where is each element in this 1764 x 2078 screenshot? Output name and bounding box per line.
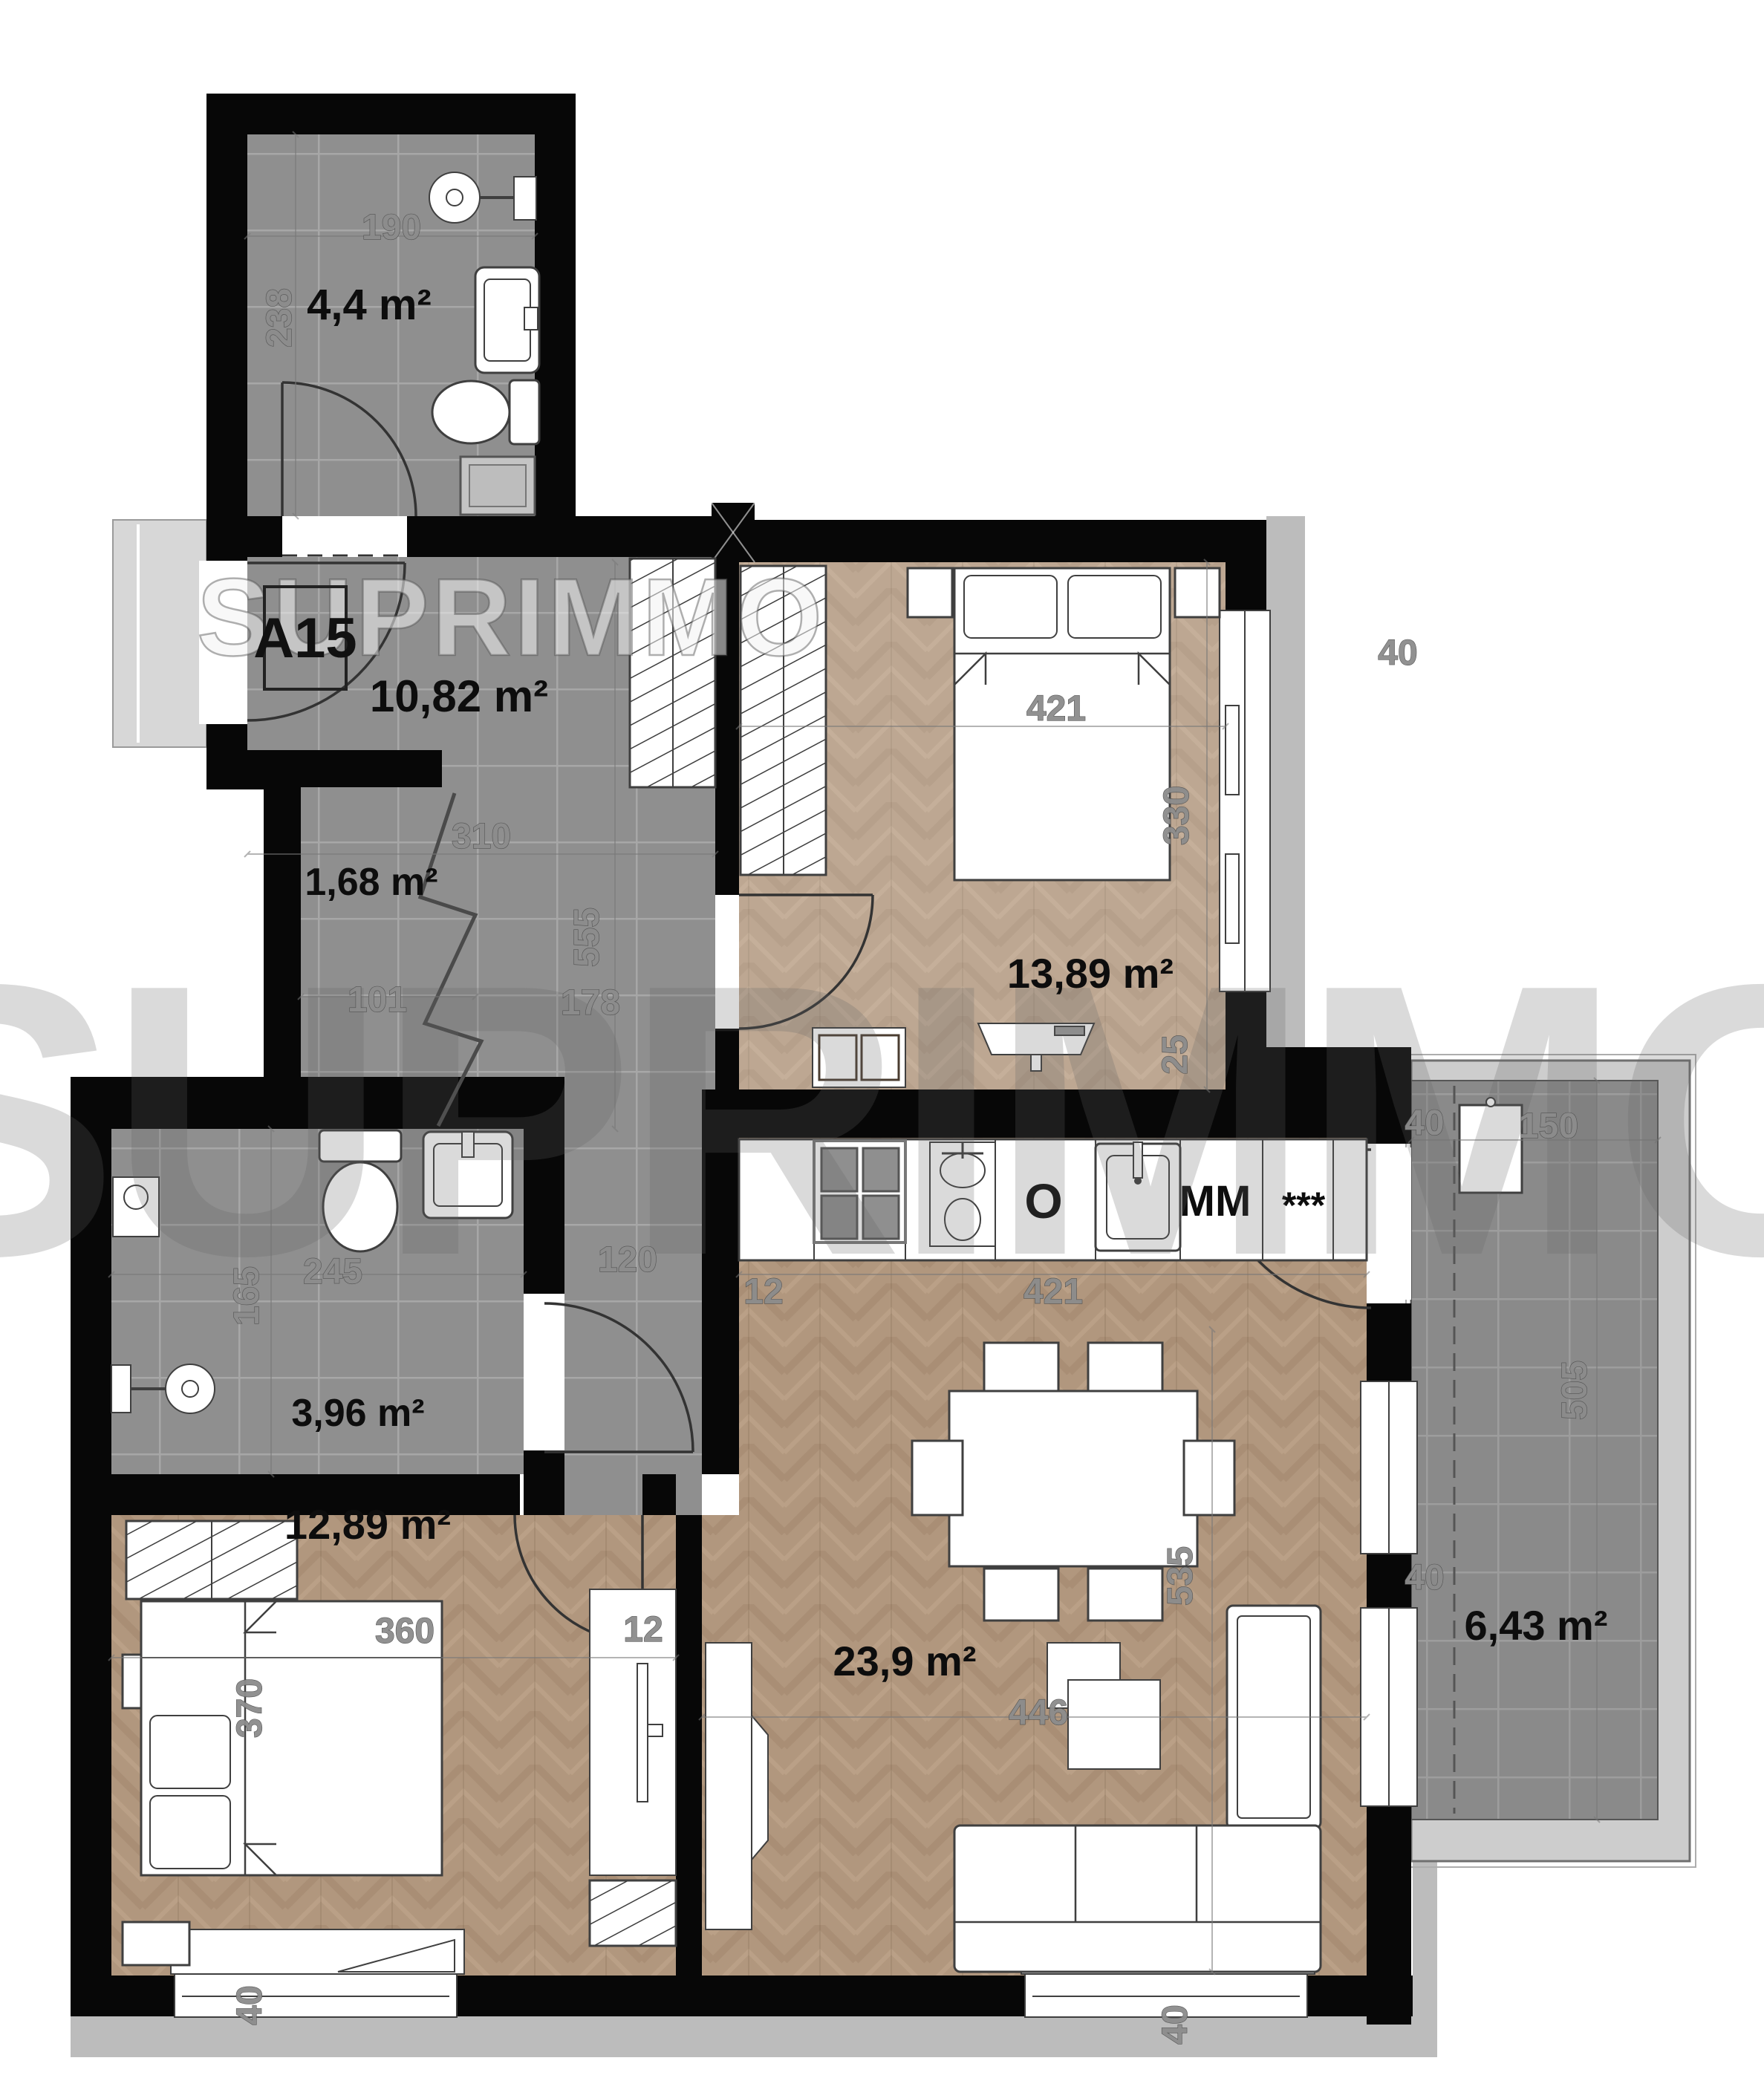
shaft-symbol bbox=[712, 503, 755, 562]
area-bath-top: 4,4 m² bbox=[307, 281, 432, 329]
dim-bath-lower-width: 245 bbox=[303, 1252, 362, 1292]
floorplan-svg: O MM *** bbox=[0, 0, 1764, 2078]
wall bbox=[71, 1976, 175, 2016]
wall bbox=[1226, 520, 1266, 610]
chair bbox=[984, 1343, 1058, 1395]
nightstand bbox=[908, 568, 952, 617]
dining-table bbox=[949, 1391, 1197, 1566]
area-hallway: 10,82 m² bbox=[370, 671, 548, 721]
area-balcony: 6,43 m² bbox=[1465, 1602, 1608, 1649]
nightstand bbox=[1175, 568, 1220, 617]
toilet-icon bbox=[432, 380, 539, 444]
wall bbox=[206, 516, 282, 557]
window-living-right-2 bbox=[1361, 1608, 1417, 1806]
dim-kitchen-offset: 12 bbox=[743, 1272, 783, 1312]
dim-closet-width: 101 bbox=[348, 980, 407, 1020]
dim-corridor-width: 120 bbox=[598, 1240, 657, 1280]
area-bath-lower: 3,96 m² bbox=[291, 1392, 424, 1435]
shower-tray-icon bbox=[460, 457, 535, 515]
dim-balcony-width: 150 bbox=[1519, 1107, 1578, 1146]
nightstand bbox=[123, 1922, 189, 1965]
wardrobe-bedroom-bottom bbox=[126, 1521, 297, 1599]
wall bbox=[535, 94, 576, 516]
dim-bedroom-bottom-window: 40 bbox=[230, 1985, 270, 2025]
dim-living-height: 535 bbox=[1161, 1546, 1200, 1606]
wall bbox=[1307, 1976, 1413, 2016]
chair bbox=[912, 1441, 963, 1515]
dim-bedroom-top-height: 330 bbox=[1157, 786, 1197, 845]
dim-bedroom-bottom-height: 370 bbox=[230, 1678, 270, 1738]
dim-bedroom-bottom-desk: 12 bbox=[623, 1610, 663, 1649]
dim-living-pier-bottom: 40 bbox=[1405, 1558, 1444, 1597]
shelf-bedroom-bottom bbox=[590, 1880, 676, 1946]
dim-balcony-height: 505 bbox=[1555, 1361, 1595, 1420]
dim-bedroom-top-bed: 421 bbox=[1026, 689, 1086, 729]
wall bbox=[676, 1515, 702, 1976]
wall bbox=[642, 1474, 676, 1515]
sink-icon bbox=[475, 267, 539, 373]
wall bbox=[524, 1450, 564, 1515]
window-bedroom-bottom bbox=[171, 1929, 464, 2017]
dim-bedroom-bottom-width: 360 bbox=[375, 1612, 435, 1651]
wall bbox=[407, 516, 724, 557]
area-bedroom-bottom: 12,89 m² bbox=[284, 1501, 451, 1548]
wall bbox=[457, 1976, 1025, 2016]
dim-living-window: 40 bbox=[1156, 2004, 1195, 2044]
dim-bath-top-width: 190 bbox=[362, 208, 421, 247]
trim-bottom bbox=[71, 2016, 1413, 2057]
chair bbox=[984, 1569, 1058, 1621]
chair bbox=[1088, 1569, 1162, 1621]
area-closet: 1,68 m² bbox=[305, 861, 437, 904]
dim-bath-top-height: 238 bbox=[260, 288, 299, 348]
chair bbox=[1088, 1343, 1162, 1395]
wall bbox=[264, 750, 442, 787]
area-bedroom-top: 13,89 m² bbox=[1007, 950, 1174, 997]
dim-bedroom-top-window: 40 bbox=[1378, 634, 1417, 673]
dim-corridor-height: 555 bbox=[567, 908, 607, 967]
dim-bath-lower-height: 165 bbox=[227, 1266, 267, 1326]
dim-corridor-height2: 178 bbox=[561, 983, 620, 1023]
wall bbox=[206, 94, 247, 561]
wall bbox=[206, 94, 576, 134]
floorplan-page: O MM *** bbox=[0, 0, 1764, 2078]
unit-label: A15 bbox=[253, 607, 357, 670]
dim-kitchen-width: 421 bbox=[1023, 1272, 1083, 1312]
wall bbox=[71, 1515, 111, 1976]
dim-living-pier-top: 40 bbox=[1405, 1104, 1444, 1143]
window-living-right-1 bbox=[1361, 1381, 1417, 1554]
dim-living-width: 446 bbox=[1009, 1693, 1068, 1733]
entry-landing bbox=[113, 520, 206, 747]
chair bbox=[1184, 1441, 1234, 1515]
dim-hallway-width: 310 bbox=[452, 817, 511, 856]
area-living: 23,9 m² bbox=[833, 1638, 977, 1684]
dim-bedroom-top-offset: 25 bbox=[1156, 1035, 1195, 1074]
